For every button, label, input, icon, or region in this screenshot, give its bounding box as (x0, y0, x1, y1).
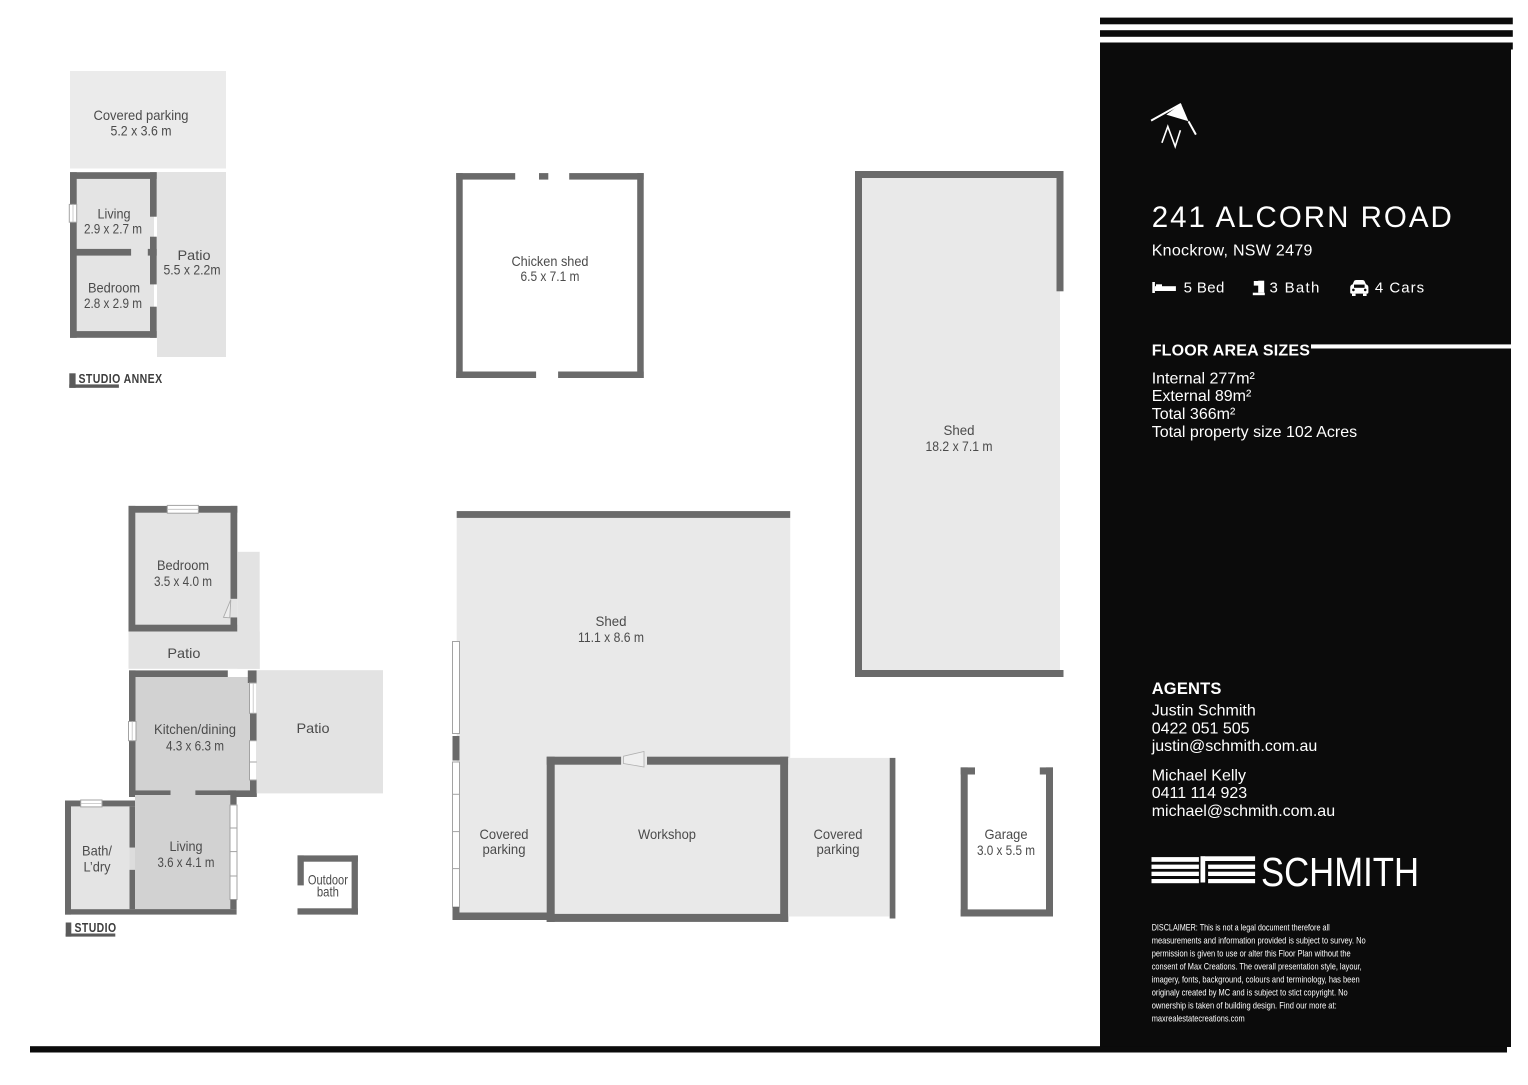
svg-text:11.1 x 8.6 m: 11.1 x 8.6 m (578, 629, 644, 645)
svg-text:Bedroom: Bedroom (88, 280, 140, 296)
svg-text:2.9 x 2.7 m: 2.9 x 2.7 m (84, 221, 142, 237)
svg-text:Living: Living (98, 206, 131, 222)
svg-text:permission is given to use or: permission is given to use or alter this… (1152, 949, 1351, 959)
svg-text:L’dry: L’dry (84, 859, 111, 875)
svg-text:Knockrow, NSW 2479: Knockrow, NSW 2479 (1152, 243, 1313, 260)
svg-text:3.6 x 4.1 m: 3.6 x 4.1 m (158, 854, 215, 870)
svg-text:Shed: Shed (944, 422, 975, 438)
svg-text:Covered: Covered (814, 826, 863, 842)
svg-text:2.8 x 2.9 m: 2.8 x 2.9 m (84, 295, 142, 311)
svg-text:Shed: Shed (596, 613, 627, 629)
svg-text:Workshop: Workshop (638, 826, 696, 842)
svg-text:originaly created by MC and is: originaly created by MC and is subject t… (1152, 988, 1348, 998)
svg-text:Kitchen/dining: Kitchen/dining (154, 721, 236, 737)
svg-text:justin@schmith.com.au: justin@schmith.com.au (1151, 738, 1318, 755)
svg-text:Bath/: Bath/ (82, 843, 112, 859)
svg-text:Total property size 102 Acres: Total property size 102 Acres (1152, 424, 1357, 441)
svg-text:bath: bath (317, 884, 339, 900)
svg-text:Living: Living (170, 838, 203, 854)
svg-text:Covered: Covered (480, 826, 529, 842)
svg-text:Justin Schmith: Justin Schmith (1152, 703, 1256, 720)
svg-text:Garage: Garage (985, 826, 1028, 842)
svg-text:DISCLAIMER: This is not a lega: DISCLAIMER: This is not a legal document… (1152, 923, 1330, 933)
svg-text:STUDIO ANNEX: STUDIO ANNEX (79, 371, 163, 386)
svg-text:4 Cars: 4 Cars (1375, 279, 1425, 296)
svg-text:241 ALCORN ROAD: 241 ALCORN ROAD (1152, 201, 1454, 234)
svg-text:5 Bed: 5 Bed (1184, 279, 1225, 296)
svg-text:FLOOR AREA SIZES: FLOOR AREA SIZES (1152, 343, 1311, 360)
svg-text:3.0 x 5.5 m: 3.0 x 5.5 m (977, 842, 1035, 858)
svg-text:Covered parking: Covered parking (94, 107, 189, 123)
svg-text:3.5 x 4.0 m: 3.5 x 4.0 m (154, 573, 212, 589)
svg-text:Chicken shed: Chicken shed (512, 253, 589, 269)
svg-text:3 Bath: 3 Bath (1270, 279, 1321, 296)
svg-text:parking: parking (817, 841, 860, 857)
svg-text:0422 051 505: 0422 051 505 (1152, 720, 1250, 737)
svg-text:External 89m²: External 89m² (1152, 388, 1252, 405)
svg-text:5.5 x 2.2m: 5.5 x 2.2m (164, 262, 221, 278)
svg-text:Bedroom: Bedroom (157, 557, 209, 573)
svg-text:4.3 x 6.3 m: 4.3 x 6.3 m (166, 738, 224, 754)
svg-text:Patio: Patio (167, 645, 200, 661)
svg-text:SCHMITH: SCHMITH (1261, 849, 1419, 895)
svg-text:Internal 277m²: Internal 277m² (1152, 370, 1256, 387)
svg-text:AGENTS: AGENTS (1152, 680, 1222, 698)
svg-text:ownership is taken of building: ownership is taken of building design. F… (1152, 1001, 1337, 1011)
svg-text:imagery, fonts, background, co: imagery, fonts, background, colours and … (1152, 975, 1360, 985)
svg-text:5.2 x 3.6 m: 5.2 x 3.6 m (111, 123, 172, 139)
svg-text:Total 366m²: Total 366m² (1152, 406, 1236, 423)
svg-text:0411 114 923: 0411 114 923 (1152, 785, 1248, 802)
svg-text:Patio: Patio (297, 720, 330, 736)
svg-text:michael@schmith.com.au: michael@schmith.com.au (1152, 803, 1335, 820)
svg-text:6.5 x 7.1 m: 6.5 x 7.1 m (521, 268, 580, 284)
svg-text:Michael Kelly: Michael Kelly (1152, 767, 1246, 784)
svg-text:parking: parking (483, 841, 526, 857)
svg-text:consent of Max Creations. The: consent of Max Creations. The overall pr… (1152, 962, 1362, 972)
svg-text:maxrealestatecreations.com: maxrealestatecreations.com (1152, 1014, 1245, 1024)
svg-text:18.2 x 7.1 m: 18.2 x 7.1 m (926, 438, 993, 454)
svg-text:measurements and information p: measurements and information provided is… (1152, 936, 1366, 946)
svg-text:STUDIO: STUDIO (75, 920, 117, 935)
